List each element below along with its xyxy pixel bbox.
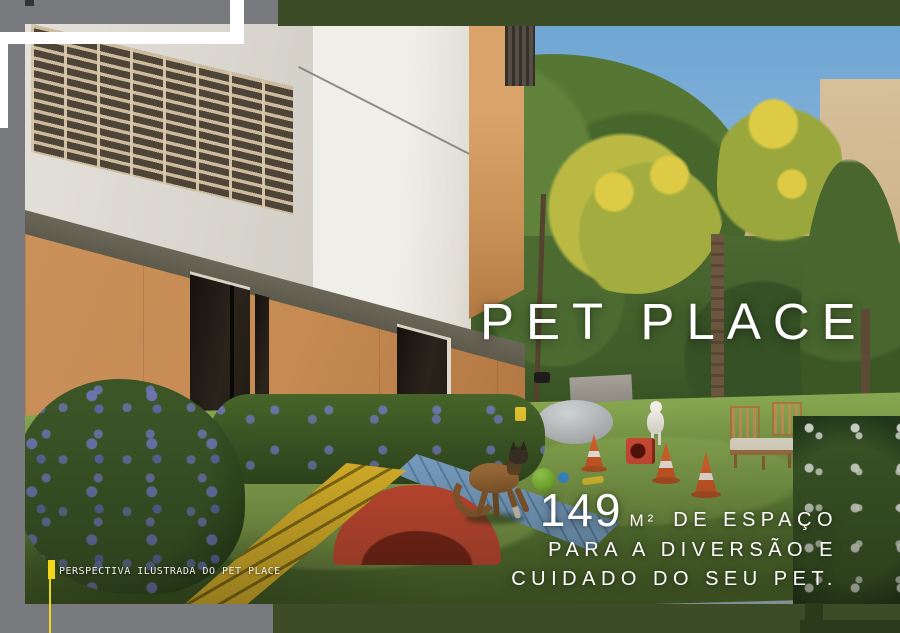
top-dark-notch — [25, 0, 34, 6]
white-frame-horizontal-line — [0, 32, 244, 44]
area-stat-block: 149 M² DE ESPAÇO PARA A DIVERSÃO E CUIDA… — [511, 487, 838, 591]
caption-yellow-marker — [48, 560, 55, 579]
caption-yellow-line — [49, 579, 51, 633]
white-frame-left-line — [0, 32, 8, 128]
photo-caption: PERSPECTIVA ILUSTRADA DO PET PLACE — [59, 566, 281, 577]
area-stat-line2: PARA A DIVERSÃO E — [511, 539, 838, 562]
marketing-page: PET PLACE 149 M² DE ESPAÇO PARA A DIVERS… — [0, 0, 900, 633]
bottom-green-tab — [805, 603, 823, 621]
area-value: 149 — [540, 487, 623, 533]
area-stat-line1: 149 M² DE ESPAÇO — [511, 487, 838, 533]
bottom-right-green-corner — [800, 620, 900, 633]
top-green-band — [278, 0, 900, 26]
page-title: PET PLACE — [480, 296, 868, 347]
area-unit: M² — [629, 511, 657, 531]
area-text: DE ESPAÇO — [673, 509, 838, 532]
white-frame-top-line — [230, 0, 244, 44]
area-stat-line3: CUIDADO DO SEU PET. — [511, 568, 838, 591]
